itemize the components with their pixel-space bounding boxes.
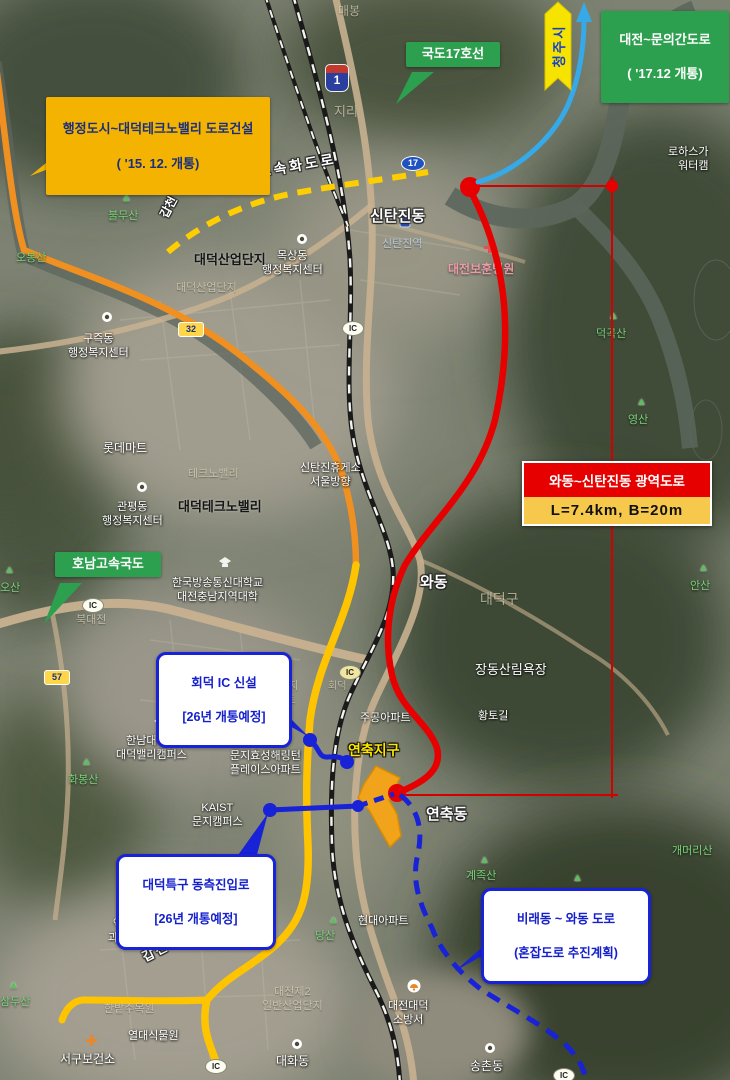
muni-road-callout-tail [599, 62, 629, 85]
metro-road-red-line [388, 190, 505, 792]
yeonchuk-district-polygon [358, 766, 401, 847]
national17-callout-tail [396, 72, 434, 104]
satellite-road-plan-map: 매봉 지리 로하스가 워터캠 신탄진동 신탄진역 대전보훈병원 대덕산업단지 대… [0, 0, 730, 1080]
blue-arrowhead-icon [576, 2, 592, 22]
honam-callout-tail [44, 583, 82, 624]
hoedeok-callout-tail [243, 693, 309, 737]
measurement-lines [404, 177, 618, 798]
east-entry-callout-tail [236, 813, 268, 866]
new-link-lines [263, 733, 364, 817]
admin-city-callout-tail [30, 150, 98, 176]
annotation-overlay [0, 0, 730, 1080]
red-node-east [606, 180, 618, 192]
cheongju-banner-ribbon [545, 2, 571, 90]
birae-callout-tail [455, 939, 512, 971]
